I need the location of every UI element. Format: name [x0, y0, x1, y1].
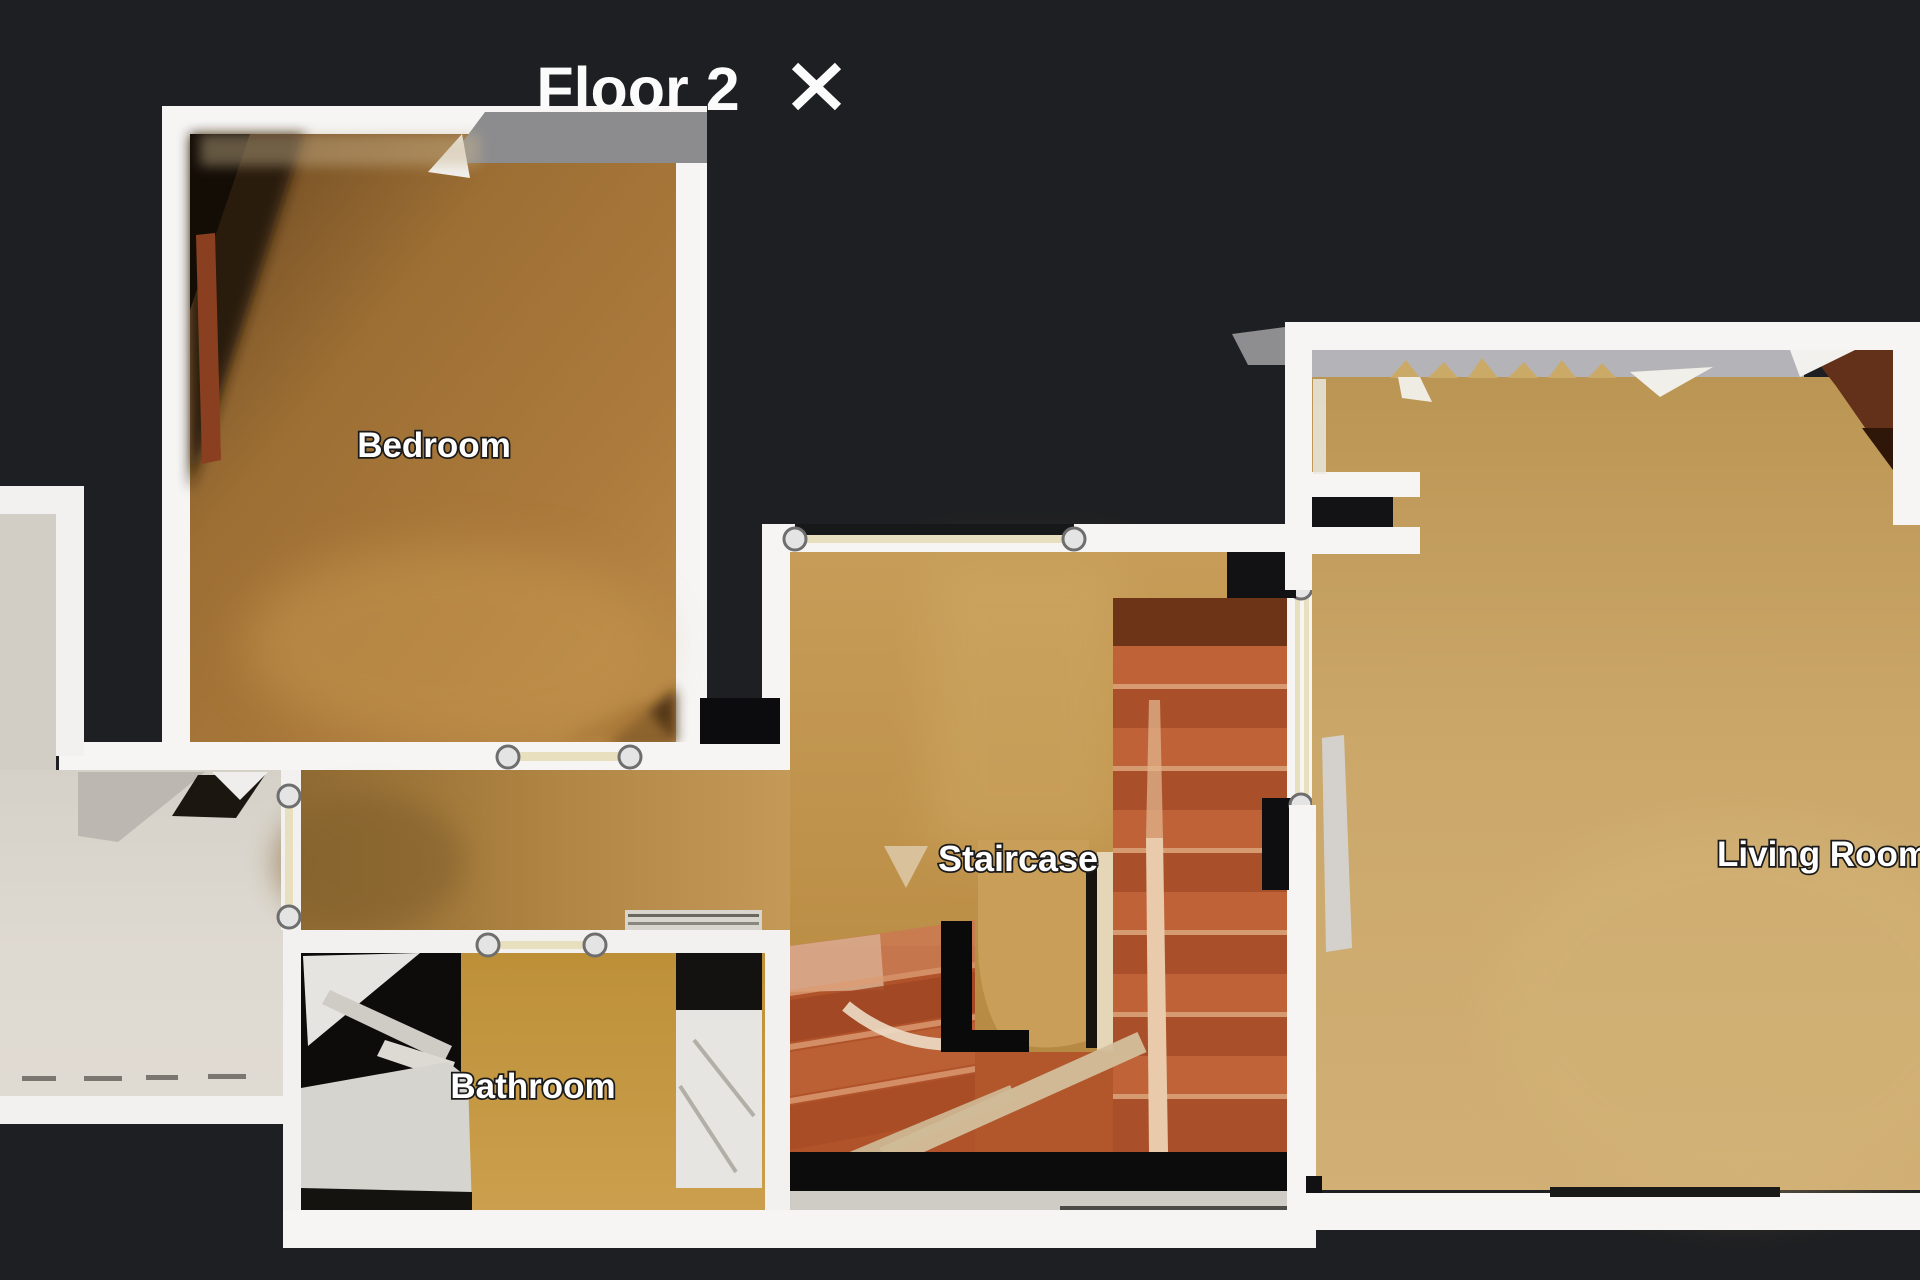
- svg-text:Bathroom: Bathroom: [450, 1067, 615, 1106]
- svg-text:Floor 2: Floor 2: [536, 55, 739, 123]
- svg-text:Living Room: Living Room: [1717, 835, 1920, 874]
- svg-text:Bedroom: Bedroom: [357, 426, 511, 465]
- svg-text:Staircase: Staircase: [938, 838, 1098, 879]
